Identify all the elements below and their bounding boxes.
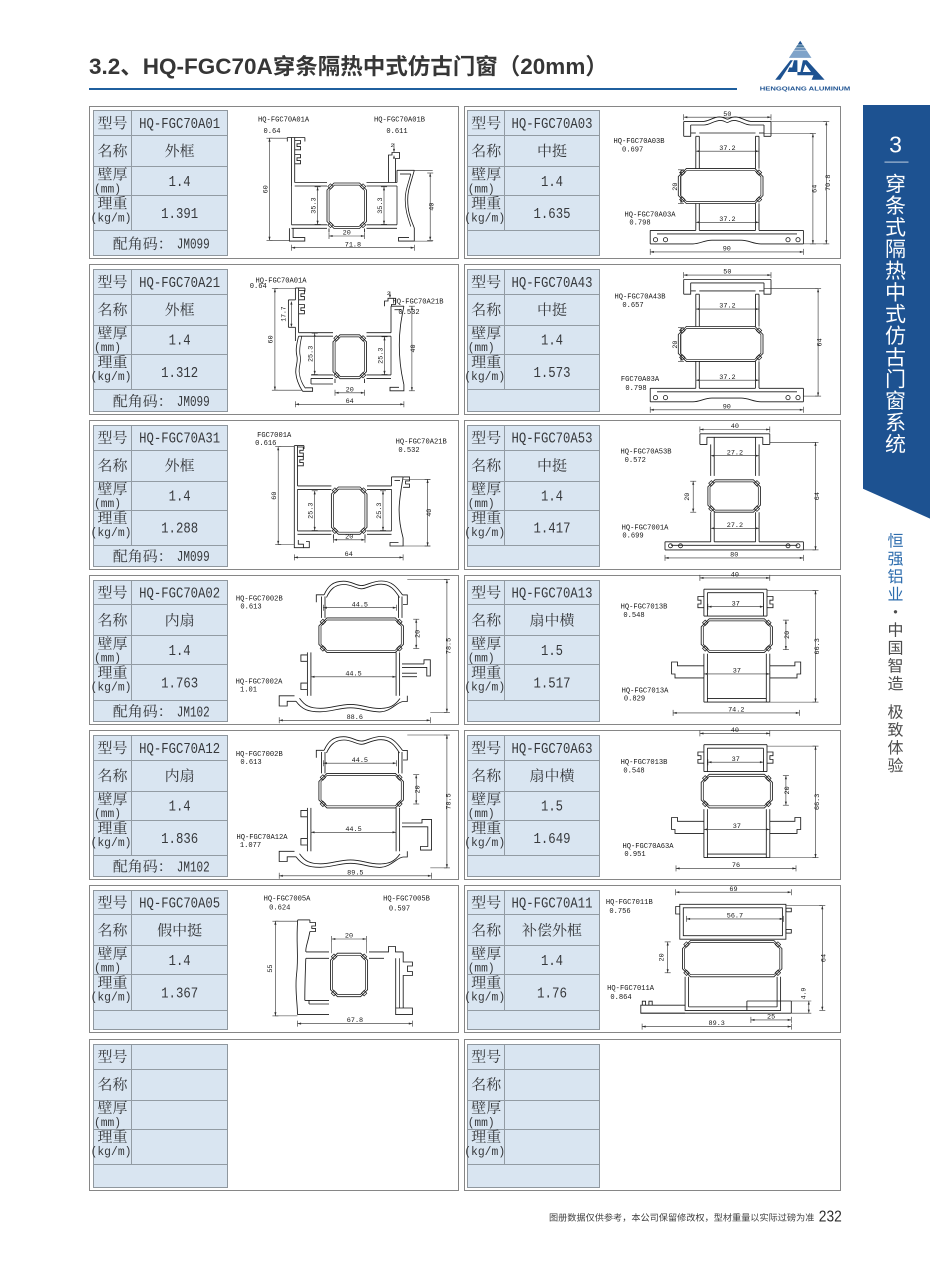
svg-text:1.01: 1.01: [240, 687, 257, 695]
svg-text:78.5: 78.5: [445, 793, 453, 809]
svg-text:HQ-FGC7005B: HQ-FGC7005B: [383, 895, 430, 903]
svg-text:0.613: 0.613: [240, 759, 261, 767]
svg-text:25.3: 25.3: [308, 502, 316, 518]
svg-text:HQ-FGC7013B: HQ-FGC7013B: [621, 604, 668, 612]
svg-text:1.4: 1.4: [541, 489, 563, 506]
svg-text:20: 20: [343, 230, 351, 238]
svg-text:20: 20: [345, 533, 353, 541]
svg-text:60: 60: [268, 335, 276, 343]
svg-text:0.597: 0.597: [389, 905, 410, 913]
svg-text:HQ-FGC70A43: HQ-FGC70A43: [512, 275, 593, 292]
svg-text:1.4: 1.4: [541, 174, 563, 191]
svg-text:0.951: 0.951: [624, 851, 645, 859]
svg-text:37: 37: [733, 668, 741, 676]
svg-text:HQ-FGC70A11: HQ-FGC70A11: [512, 895, 593, 912]
svg-text:(kg/m): (kg/m): [91, 211, 132, 225]
svg-text:64: 64: [811, 185, 819, 193]
svg-text:20: 20: [784, 786, 792, 794]
svg-text:20: 20: [784, 631, 792, 639]
svg-text:HQ-FGC70A13: HQ-FGC70A13: [512, 585, 593, 602]
svg-text:HENGQIANG ALUMINUM: HENGQIANG ALUMINUM: [760, 86, 851, 92]
svg-text:0.532: 0.532: [398, 309, 419, 317]
svg-text:(mm): (mm): [94, 497, 121, 511]
svg-text:(kg/m): (kg/m): [464, 991, 505, 1005]
svg-text:HQ-FGC70A03B: HQ-FGC70A03B: [613, 138, 664, 146]
svg-text:FGC7001A: FGC7001A: [257, 432, 292, 440]
svg-text:HQ-FGC70A63A: HQ-FGC70A63A: [622, 843, 674, 851]
svg-text:20: 20: [672, 340, 680, 348]
svg-text:(mm): (mm): [468, 962, 495, 976]
svg-text:74.2: 74.2: [728, 707, 744, 715]
svg-text:0.829: 0.829: [624, 696, 645, 704]
svg-text:HQ-FGC70A12: HQ-FGC70A12: [139, 741, 220, 758]
svg-text:JM099: JM099: [177, 237, 210, 254]
svg-text:0.697: 0.697: [622, 147, 643, 155]
svg-text:0.864: 0.864: [610, 994, 631, 1002]
svg-text:0.756: 0.756: [609, 908, 630, 916]
svg-text:HQ-FGC7002B: HQ-FGC7002B: [236, 751, 283, 759]
svg-text:25.3: 25.3: [377, 347, 385, 363]
svg-text:0.624: 0.624: [269, 905, 290, 913]
svg-text:67.8: 67.8: [347, 1017, 363, 1025]
svg-text:(kg/m): (kg/m): [91, 370, 132, 384]
svg-text:89.3: 89.3: [709, 1020, 725, 1028]
svg-text:37: 37: [732, 756, 740, 764]
svg-text:(mm): (mm): [468, 652, 495, 666]
svg-text:64: 64: [346, 398, 354, 406]
svg-text:1.635: 1.635: [534, 206, 571, 223]
svg-text:HQ-FGC70A63: HQ-FGC70A63: [512, 741, 593, 758]
svg-text:0.613: 0.613: [240, 603, 261, 611]
svg-text:1.288: 1.288: [161, 521, 198, 538]
svg-text:20: 20: [414, 630, 422, 638]
svg-text:HQ-FGC7013B: HQ-FGC7013B: [621, 759, 668, 767]
svg-text:JM099: JM099: [177, 549, 210, 566]
svg-text:(mm): (mm): [94, 1116, 121, 1130]
svg-text:1.5: 1.5: [541, 643, 563, 660]
svg-text:HQ-FGC70A21B: HQ-FGC70A21B: [392, 299, 443, 307]
svg-text:20: 20: [345, 933, 353, 941]
svg-text:(kg/m): (kg/m): [464, 211, 505, 225]
svg-text:78.5: 78.5: [445, 638, 453, 654]
svg-text:(mm): (mm): [94, 807, 121, 821]
svg-text:HQ-FGC70A01B: HQ-FGC70A01B: [374, 117, 425, 125]
svg-text:50: 50: [723, 269, 731, 277]
svg-text:1.077: 1.077: [240, 842, 261, 850]
svg-text:37.2: 37.2: [719, 145, 735, 153]
svg-text:90: 90: [723, 246, 731, 254]
svg-text:3.2: 3.2: [89, 54, 120, 79]
svg-text:0.798: 0.798: [629, 220, 650, 228]
svg-text:1.391: 1.391: [161, 206, 198, 223]
svg-text:37.2: 37.2: [719, 303, 735, 311]
svg-text:1.4: 1.4: [169, 643, 191, 660]
svg-text:(mm): (mm): [94, 962, 121, 976]
svg-text:20: 20: [672, 183, 680, 191]
svg-text:4.9: 4.9: [801, 988, 808, 1000]
svg-text:20mm: 20mm: [520, 54, 585, 79]
svg-text:0.699: 0.699: [622, 533, 643, 541]
svg-text:HQ-FGC70A21: HQ-FGC70A21: [139, 275, 220, 292]
svg-text:HQ-FGC7011B: HQ-FGC7011B: [606, 899, 653, 907]
svg-text:40: 40: [410, 344, 418, 352]
svg-text:(kg/m): (kg/m): [464, 1145, 505, 1159]
svg-text:HQ-FGC70A12A: HQ-FGC70A12A: [236, 834, 288, 842]
svg-text:55: 55: [267, 964, 275, 972]
svg-text:1.573: 1.573: [534, 365, 571, 382]
svg-text:40: 40: [731, 572, 739, 580]
svg-text:HQ-FGC70A: HQ-FGC70A: [143, 54, 273, 79]
svg-text:88.6: 88.6: [347, 714, 363, 722]
svg-text:1.4: 1.4: [169, 799, 191, 816]
svg-text:1.517: 1.517: [534, 675, 571, 692]
svg-text:HQ-FGC7002A: HQ-FGC7002A: [236, 679, 284, 687]
svg-text:0.532: 0.532: [398, 447, 419, 455]
svg-text:71.8: 71.8: [345, 241, 361, 249]
svg-text:FGC70A03A: FGC70A03A: [621, 376, 660, 384]
svg-text:64: 64: [817, 338, 825, 346]
svg-text:(mm): (mm): [468, 1116, 495, 1130]
svg-text:(kg/m): (kg/m): [464, 681, 505, 695]
svg-text:27.2: 27.2: [727, 449, 743, 457]
svg-text:(mm): (mm): [468, 807, 495, 821]
svg-text:(mm): (mm): [468, 341, 495, 355]
svg-text:1.76: 1.76: [537, 985, 567, 1002]
svg-text:HQ-FGC7002B: HQ-FGC7002B: [236, 595, 283, 603]
svg-text:40: 40: [731, 727, 739, 735]
svg-text:66.3: 66.3: [814, 638, 822, 654]
svg-text:1.5: 1.5: [541, 799, 563, 816]
svg-text:0.64: 0.64: [250, 283, 267, 291]
svg-text:35.3: 35.3: [310, 197, 318, 213]
svg-text:44.5: 44.5: [345, 670, 361, 678]
svg-text:37.2: 37.2: [719, 374, 735, 382]
svg-text:(kg/m): (kg/m): [91, 836, 132, 850]
svg-text:(kg/m): (kg/m): [91, 681, 132, 695]
svg-text:(kg/m): (kg/m): [91, 1145, 132, 1159]
svg-text:76: 76: [732, 862, 740, 870]
svg-text:40: 40: [426, 509, 434, 517]
svg-text:0.64: 0.64: [263, 128, 280, 136]
svg-text:37: 37: [733, 823, 741, 831]
svg-text:(mm): (mm): [94, 341, 121, 355]
svg-text:25.3: 25.3: [376, 502, 384, 518]
svg-text:80: 80: [730, 552, 738, 560]
svg-text:HQ-FGC7013A: HQ-FGC7013A: [622, 687, 670, 695]
svg-text:0.548: 0.548: [623, 767, 644, 775]
svg-text:64: 64: [345, 551, 353, 559]
svg-text:35.3: 35.3: [377, 197, 385, 213]
svg-text:20: 20: [659, 953, 667, 961]
svg-text:44.5: 44.5: [352, 757, 368, 765]
svg-text:HQ-FGC70A05: HQ-FGC70A05: [139, 895, 220, 912]
svg-text:HQ-FGC70A03A: HQ-FGC70A03A: [624, 211, 676, 219]
svg-text:HQ-FGC70A02: HQ-FGC70A02: [139, 585, 220, 602]
svg-text:60: 60: [271, 492, 279, 500]
svg-text:25: 25: [767, 1014, 775, 1022]
svg-text:0.657: 0.657: [622, 302, 643, 310]
svg-text:0.798: 0.798: [625, 385, 646, 393]
svg-text:HQ-FGC7001A: HQ-FGC7001A: [622, 524, 670, 532]
svg-text:HQ-FGC7011A: HQ-FGC7011A: [607, 985, 655, 993]
svg-text:40: 40: [731, 423, 739, 431]
svg-text:44.5: 44.5: [352, 601, 368, 609]
svg-text:HQ-FGC70A53: HQ-FGC70A53: [512, 431, 593, 448]
svg-text:1.4: 1.4: [169, 174, 191, 191]
svg-text:89.5: 89.5: [347, 869, 363, 877]
svg-text:66.3: 66.3: [814, 794, 822, 810]
svg-text:3: 3: [889, 132, 902, 158]
svg-text:17.7: 17.7: [281, 306, 288, 321]
svg-text:1.836: 1.836: [161, 831, 198, 848]
svg-text:0.616: 0.616: [255, 440, 276, 448]
svg-text:64: 64: [821, 954, 829, 962]
svg-text:1.4: 1.4: [169, 489, 191, 506]
svg-text:(mm): (mm): [94, 652, 121, 666]
svg-text:20: 20: [346, 386, 354, 394]
svg-text:64: 64: [814, 492, 822, 500]
svg-text:25.3: 25.3: [308, 346, 316, 362]
svg-text:HQ-FGC70A43B: HQ-FGC70A43B: [614, 294, 665, 302]
svg-text:HQ-FGC7005A: HQ-FGC7005A: [264, 895, 312, 903]
svg-text:(mm): (mm): [94, 182, 121, 196]
svg-text:(mm): (mm): [468, 182, 495, 196]
svg-text:1.4: 1.4: [169, 953, 191, 970]
svg-text:1.763: 1.763: [161, 675, 198, 692]
svg-text:40: 40: [428, 203, 436, 211]
svg-text:(kg/m): (kg/m): [91, 991, 132, 1005]
svg-text:90: 90: [723, 403, 731, 411]
svg-text:1.4: 1.4: [541, 953, 563, 970]
svg-text:0.572: 0.572: [625, 457, 646, 465]
svg-text:HQ-FGC70A03: HQ-FGC70A03: [512, 116, 593, 133]
svg-text:1.312: 1.312: [161, 365, 198, 382]
svg-text:HQ-FGC70A21B: HQ-FGC70A21B: [396, 439, 447, 447]
svg-text:JM102: JM102: [177, 859, 210, 876]
svg-text:60: 60: [262, 185, 270, 193]
svg-text:70.8: 70.8: [825, 175, 833, 191]
svg-text:(mm): (mm): [468, 497, 495, 511]
svg-text:27.2: 27.2: [727, 522, 743, 530]
svg-text:232: 232: [819, 1209, 842, 1226]
svg-text:(kg/m): (kg/m): [464, 836, 505, 850]
svg-text:HQ-FGC70A01A: HQ-FGC70A01A: [258, 117, 310, 125]
svg-text:(kg/m): (kg/m): [464, 526, 505, 540]
svg-text:0.548: 0.548: [623, 612, 644, 620]
svg-text:0.611: 0.611: [386, 128, 407, 136]
svg-text:1.367: 1.367: [161, 985, 198, 1002]
svg-text:20: 20: [684, 493, 692, 501]
svg-text:2: 2: [390, 142, 394, 149]
svg-text:1.649: 1.649: [534, 831, 571, 848]
svg-text:JM102: JM102: [177, 704, 210, 721]
svg-text:(kg/m): (kg/m): [464, 370, 505, 384]
svg-text:44.5: 44.5: [345, 826, 361, 834]
svg-text:(kg/m): (kg/m): [91, 526, 132, 540]
svg-text:HQ-FGC70A31: HQ-FGC70A31: [139, 431, 220, 448]
svg-text:1.4: 1.4: [169, 333, 191, 350]
svg-text:1.4: 1.4: [541, 333, 563, 350]
svg-text:JM099: JM099: [177, 394, 210, 411]
svg-text:69: 69: [729, 886, 737, 894]
svg-text:2: 2: [387, 290, 391, 297]
svg-text:20: 20: [414, 785, 422, 793]
svg-text:37: 37: [732, 600, 740, 608]
svg-text:37.2: 37.2: [719, 216, 735, 224]
svg-text:HQ-FGC70A01: HQ-FGC70A01: [139, 116, 220, 133]
svg-text:56.7: 56.7: [727, 913, 743, 921]
svg-text:HQ-FGC70A53B: HQ-FGC70A53B: [620, 449, 671, 457]
svg-text:1.417: 1.417: [534, 521, 571, 538]
